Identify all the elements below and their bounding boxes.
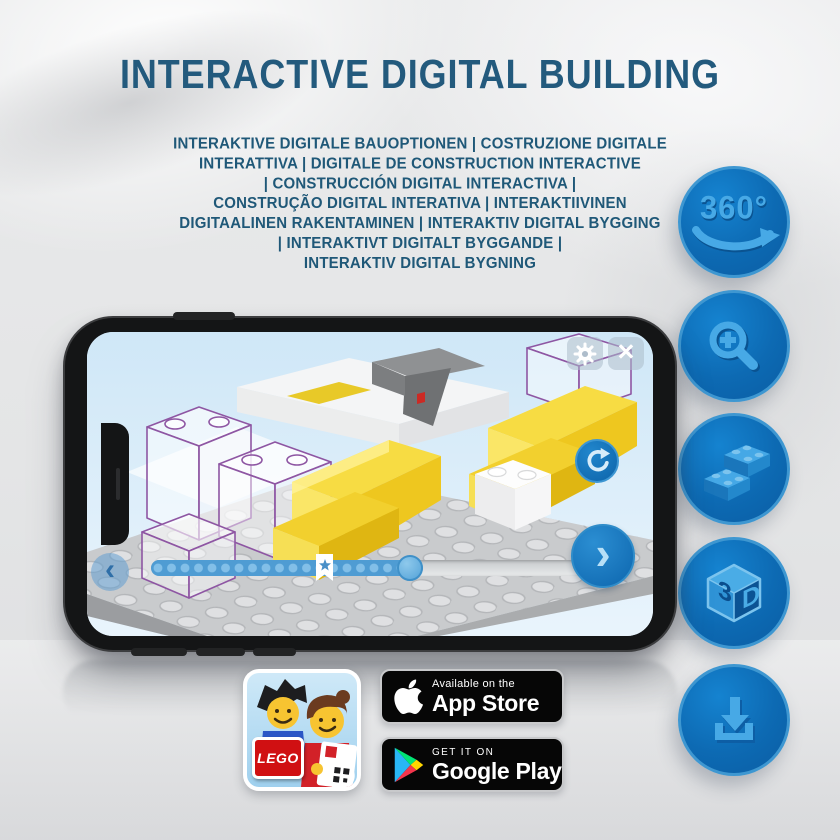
lego-logo: LEGO (252, 737, 304, 779)
360-degrees-label: 360° (700, 189, 768, 227)
chevron-left-icon: ‹ (105, 555, 115, 585)
chevron-right-icon: › (595, 530, 610, 576)
subtitle-line: DIGITAALINEN RAKENTAMINEN | INTERAKTIV D… (130, 213, 710, 233)
360-rotation-arrow-icon: 360° (681, 169, 787, 275)
phone-reflection (63, 660, 677, 724)
phone-side-button (173, 312, 235, 320)
page-title: INTERACTIVE DIGITAL BUILDING (13, 52, 828, 98)
phone-screen: × ‹ › (87, 332, 653, 636)
cube-face-3-label: 3 (718, 575, 732, 610)
rotate-icon (583, 447, 611, 475)
close-button[interactable]: × (608, 337, 644, 370)
progress-slider-thumb[interactable] (397, 555, 423, 581)
google-play-tagline: GET IT ON (432, 746, 562, 759)
star-icon (319, 559, 331, 571)
gear-icon (572, 341, 598, 367)
feature-3d-badge: 3 D (678, 537, 790, 649)
feature-360-badge: 360° (678, 166, 790, 278)
phone-speaker (116, 468, 120, 500)
app-store-tagline: Available on the (432, 678, 539, 691)
phone-notch (101, 423, 129, 545)
smartphone: × ‹ › (63, 316, 677, 652)
app-store-name: App Store (432, 691, 539, 716)
settings-button[interactable] (567, 337, 603, 370)
feature-bricks-badge (678, 413, 790, 525)
subtitle-line: CONSTRUÇÃO DIGITAL INTERATIVA | INTERAKT… (130, 194, 710, 214)
progress-fill (151, 560, 423, 576)
feature-zoom-badge (678, 290, 790, 402)
subtitle-line: | CONSTRUCCIÓN DIGITAL INTERACTIVA | (130, 174, 710, 194)
feature-download-badge (678, 664, 790, 776)
google-play-name: Google Play (432, 759, 562, 784)
phone-side-button (196, 648, 245, 656)
subtitle-line: INTERAKTIV DIGITAL BYGNING (130, 253, 710, 273)
rotation-swoosh-arrow-icon (688, 226, 780, 256)
app-store-badge[interactable]: Available on the App Store (380, 669, 564, 724)
subtitle-line: INTERAKTIVE DIGITALE BAUOPTIONEN | COSTR… (130, 134, 710, 154)
next-step-button[interactable]: › (571, 524, 635, 588)
phone-side-button (253, 648, 296, 656)
rotate-model-button[interactable] (575, 439, 619, 483)
lego-logo-text: LEGO (257, 750, 299, 766)
apple-logo-icon (394, 679, 424, 715)
build-progress-bar[interactable] (151, 560, 583, 576)
subtitle: INTERAKTIVE DIGITALE BAUOPTIONEN | COSTR… (130, 134, 710, 274)
promo-canvas: INTERACTIVE DIGITAL BUILDING INTERAKTIVE… (0, 0, 840, 840)
download-icon (705, 691, 763, 749)
lego-3d-scene (87, 332, 653, 636)
previous-step-button[interactable]: ‹ (91, 553, 129, 591)
close-icon: × (618, 338, 635, 367)
subtitle-line: INTERATTIVA | DIGITALE DE CONSTRUCTION I… (130, 154, 710, 174)
lego-app-icon: LEGO (243, 669, 361, 791)
lego-bricks-icon (696, 435, 772, 503)
subtitle-line: | INTERAKTIVT DIGITALT BYGGANDE | (130, 233, 710, 253)
google-play-icon (394, 747, 424, 783)
phone-side-button (131, 648, 187, 656)
zoom-in-magnifier-icon (704, 316, 764, 376)
google-play-badge[interactable]: GET IT ON Google Play (380, 737, 564, 792)
